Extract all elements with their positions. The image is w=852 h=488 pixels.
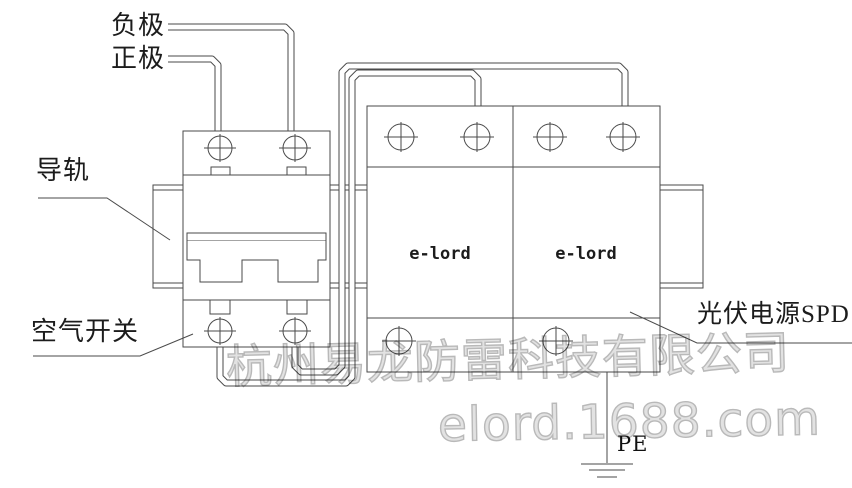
wire-negative-feed xyxy=(168,27,291,131)
spd-module1-brand: e-lord xyxy=(385,244,495,264)
negative-pole-label: 负极 xyxy=(111,12,165,39)
breaker-bottom-tab-left xyxy=(210,300,230,314)
schematic-stage: 负极 正极 导轨 空气开关 光伏电源SPD PE e-lord e-lord 杭… xyxy=(0,0,852,488)
air-switch-label: 空气开关 xyxy=(31,318,139,345)
breaker-bottom-tab-right xyxy=(287,300,307,314)
rail-leader-line xyxy=(38,198,170,240)
breaker-top-tab-right xyxy=(287,167,306,175)
earth-ground xyxy=(581,372,633,477)
breaker-top-tab-left xyxy=(211,167,230,175)
spd-unit xyxy=(367,106,660,372)
positive-pole-label: 正极 xyxy=(111,45,165,72)
spd-module2-brand: e-lord xyxy=(531,244,641,264)
din-rail-label: 导轨 xyxy=(36,157,90,184)
pe-label: PE xyxy=(617,432,648,456)
circuit-breaker xyxy=(183,131,330,347)
wire-positive-feed xyxy=(168,59,218,131)
ground-symbol xyxy=(581,464,633,477)
pv-spd-label: 光伏电源SPD xyxy=(697,302,850,328)
